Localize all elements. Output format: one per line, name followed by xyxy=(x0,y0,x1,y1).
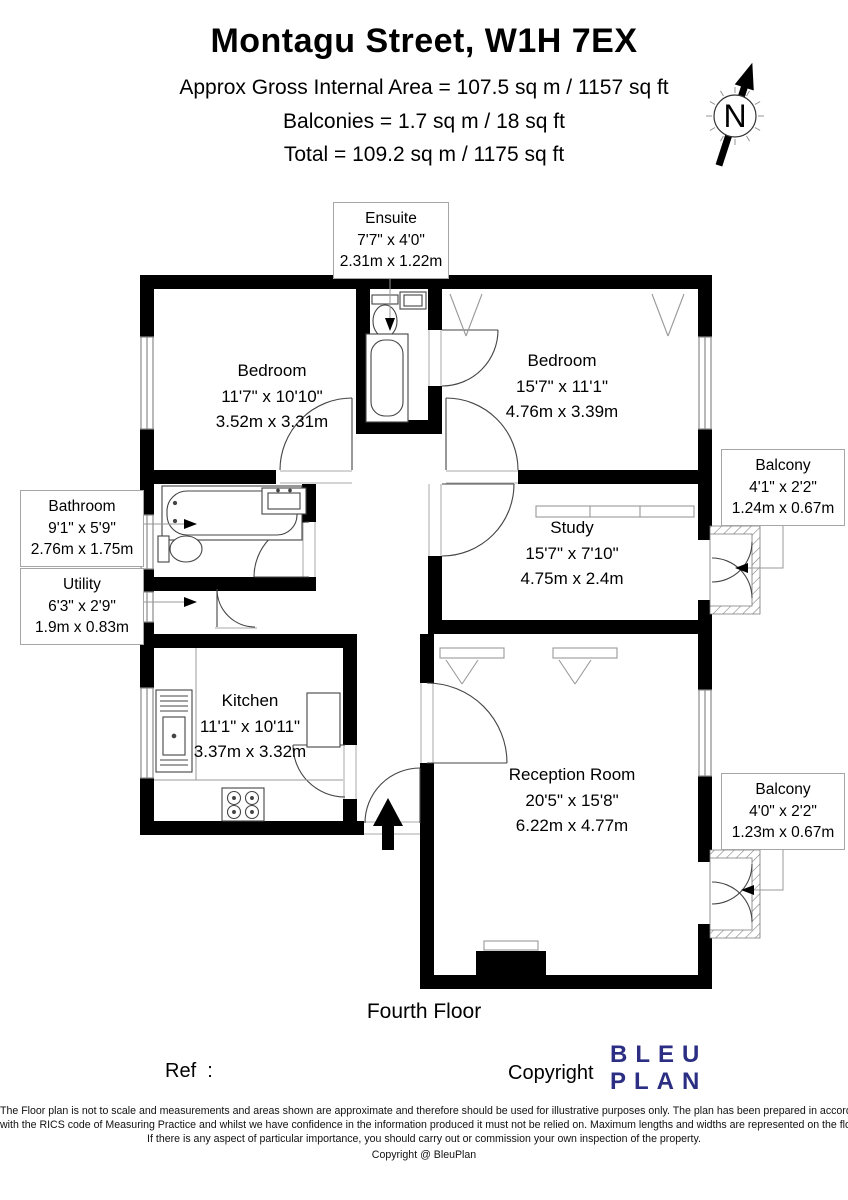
balcony-upper xyxy=(710,526,760,614)
door-study xyxy=(442,484,514,556)
reception-recess-2 xyxy=(553,648,617,684)
callout-utility: Utility 6'3" x 2'9" 1.9m x 0.83m xyxy=(20,568,144,645)
door-utility xyxy=(217,589,255,627)
door-reception xyxy=(427,683,507,763)
floorplan-page: N Montagu Street, W1H 7EX Approx Gross I… xyxy=(0,0,848,1200)
reception-recess-1 xyxy=(440,648,504,684)
door-ensuite xyxy=(442,330,498,386)
room-label-kitchen: Kitchen 11'1" x 10'11" 3.37m x 3.32m xyxy=(194,688,306,765)
callout-ensuite: Ensuite 7'7" x 4'0" 2.31m x 1.22m xyxy=(333,202,449,279)
copyright-label: Copyright xyxy=(508,1062,594,1085)
ref-label: Ref : xyxy=(165,1060,213,1083)
ensuite-toilet-icon xyxy=(372,295,398,337)
disclaimer-line-3: If there is any aspect of particular imp… xyxy=(0,1133,848,1146)
window-bedroom-right xyxy=(698,337,712,429)
window-reception xyxy=(698,690,712,776)
kitchen-fridge-icon xyxy=(307,693,340,747)
copyright-note: Copyright @ BleuPlan xyxy=(0,1149,848,1162)
callout-bathroom: Bathroom 9'1" x 5'9" 2.76m x 1.75m xyxy=(20,490,144,567)
logo-line-1: BLEU xyxy=(610,1042,707,1069)
callout-balcony-lower: Balcony 4'0" x 2'2" 1.23m x 0.67m xyxy=(721,773,845,850)
logo-line-2: PLAN xyxy=(610,1069,707,1096)
ensuite-sink-icon xyxy=(400,292,426,309)
entrance-arrow-icon xyxy=(373,798,403,850)
room-label-study: Study 15'7" x 7'10" 4.75m x 2.4m xyxy=(521,515,624,592)
callout-balcony-upper: Balcony 4'1" x 2'2" 1.24m x 0.67m xyxy=(721,449,845,526)
hearth-icon xyxy=(484,941,538,950)
disclaimer-line-2: with the RICS code of Measuring Practice… xyxy=(0,1119,848,1132)
kitchen-sink-icon xyxy=(156,690,192,772)
gross-area-line: Approx Gross Internal Area = 107.5 sq m … xyxy=(0,76,848,100)
total-line: Total = 109.2 sq m / 1175 sq ft xyxy=(0,143,848,167)
room-label-bedroom-left: Bedroom 11'7" x 10'10" 3.52m x 3.31m xyxy=(216,358,328,435)
ensuite-bathtub-icon xyxy=(366,334,408,422)
room-label-bedroom-right: Bedroom 15'7" x 11'1" 4.76m x 3.39m xyxy=(506,348,618,425)
bathroom-toilet-icon xyxy=(158,536,202,562)
bathroom-sink-icon xyxy=(262,488,306,514)
balconies-line: Balconies = 1.7 sq m / 18 sq ft xyxy=(0,110,848,134)
window-bedroom-left xyxy=(140,337,154,429)
floor-label: Fourth Floor xyxy=(0,1000,848,1024)
disclaimer-line-1: The Floor plan is not to scale and measu… xyxy=(0,1105,848,1118)
wardrobe-chevron-2 xyxy=(652,294,684,336)
page-title: Montagu Street, W1H 7EX xyxy=(0,22,848,61)
room-label-reception: Reception Room 20'5" x 15'8" 6.22m x 4.7… xyxy=(509,762,636,839)
window-kitchen xyxy=(140,688,154,778)
bleuplan-logo: BLEU PLAN xyxy=(610,1042,707,1096)
kitchen-stove-icon xyxy=(222,788,264,821)
